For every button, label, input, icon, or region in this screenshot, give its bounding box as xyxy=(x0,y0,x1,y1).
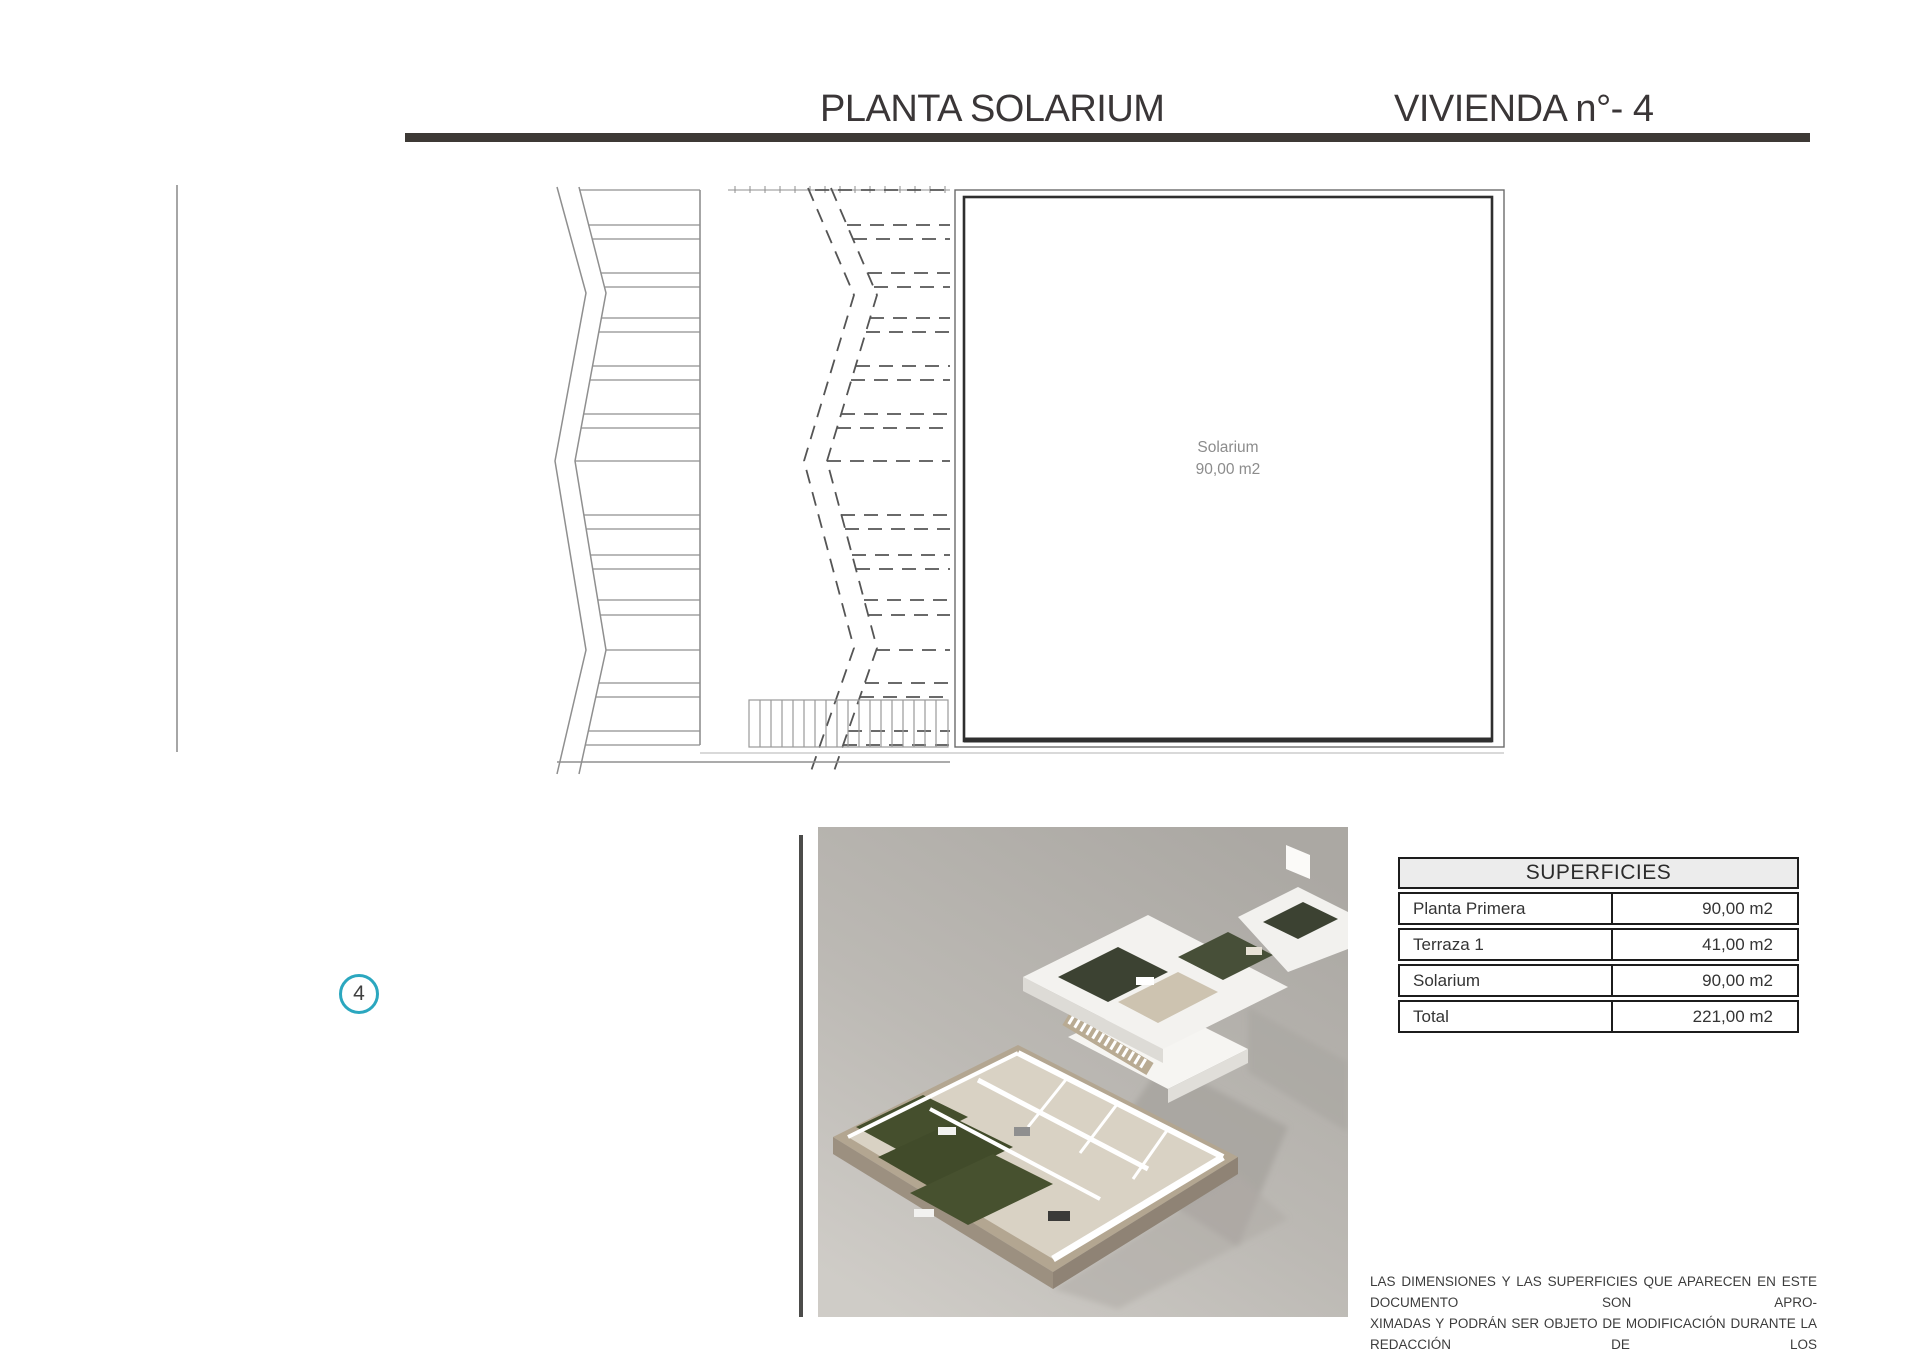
furniture xyxy=(1136,977,1154,985)
furniture xyxy=(1048,1211,1070,1221)
row-label: Total xyxy=(1400,1002,1613,1031)
row-value: 41,00 m2 xyxy=(1613,930,1797,959)
plan-sheet: Solarium 90,00 m2 PLANTA SOLARIUM VIVIEN… xyxy=(0,0,1920,1357)
image-divider-line xyxy=(799,835,803,1317)
furniture xyxy=(1014,1127,1030,1136)
unit-marker: 4 xyxy=(339,974,379,1014)
disclaimer-line: LAS DIMENSIONES Y LAS SUPERFICIES QUE AP… xyxy=(1370,1271,1817,1313)
furniture xyxy=(914,1209,934,1217)
zigzag-wall xyxy=(555,187,606,774)
disclaimer-text: LAS DIMENSIONES Y LAS SUPERFICIES QUE AP… xyxy=(1370,1271,1817,1357)
table-row: Solarium 90,00 m2 xyxy=(1398,964,1799,997)
marker-number: 4 xyxy=(353,982,365,1006)
row-value: 90,00 m2 xyxy=(1613,966,1797,995)
furniture xyxy=(1246,947,1262,955)
render-3d-image xyxy=(818,827,1348,1317)
table-row: Planta Primera 90,00 m2 xyxy=(1398,892,1799,925)
table-row: Total 221,00 m2 xyxy=(1398,1000,1799,1033)
dashed-roof-projection xyxy=(804,188,950,774)
row-label: Terraza 1 xyxy=(1400,930,1613,959)
furniture xyxy=(938,1127,956,1135)
table-row: Terraza 1 41,00 m2 xyxy=(1398,928,1799,961)
page-title: PLANTA SOLARIUM xyxy=(820,88,1164,131)
stairs xyxy=(749,700,948,747)
table-header: SUPERFICIES xyxy=(1398,857,1799,889)
disclaimer-line: XIMADAS Y PODRÁN SER OBJETO DE MODIFICAC… xyxy=(1370,1313,1817,1355)
row-value: 221,00 m2 xyxy=(1613,1002,1797,1031)
row-value: 90,00 m2 xyxy=(1613,894,1797,923)
room-label: Solarium xyxy=(1197,439,1258,456)
dwelling-title: VIVIENDA n°- 4 xyxy=(1394,88,1654,131)
room-area-label: 90,00 m2 xyxy=(1196,461,1261,478)
surfaces-table: SUPERFICIES Planta Primera 90,00 m2 Terr… xyxy=(1398,857,1799,1033)
terrace-step-lines xyxy=(575,190,700,745)
row-label: Solarium xyxy=(1400,966,1613,995)
row-label: Planta Primera xyxy=(1400,894,1613,923)
title-rule xyxy=(405,133,1810,142)
